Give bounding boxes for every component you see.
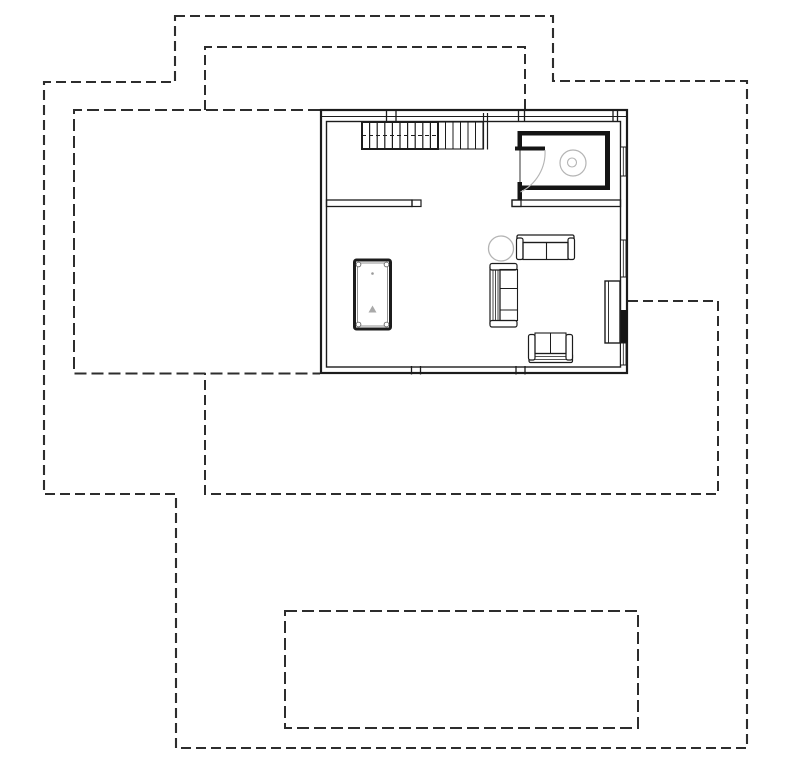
side-table	[489, 236, 514, 261]
roof-overhang-lower	[205, 301, 718, 494]
billiard-pocket	[384, 262, 389, 267]
sofa-top-back	[517, 235, 574, 243]
billiard-rack-mark	[369, 306, 377, 313]
interior-wall-right-endcap	[512, 200, 521, 207]
bathroom-wall-left-upper	[518, 131, 523, 149]
bathroom-wall-right	[605, 131, 610, 190]
toilet-bowl	[560, 150, 586, 176]
terrace-door-panel	[605, 281, 620, 343]
billiard-spot	[371, 272, 374, 275]
terrace-left-outline	[74, 110, 320, 374]
sofa-top-arm-left	[517, 238, 524, 260]
interior-wall-left	[327, 200, 413, 207]
sofa-left-arm-bottom	[490, 321, 517, 328]
bathroom-wall-top	[518, 131, 611, 136]
sofa-bottom-arm-right	[566, 335, 573, 361]
sofa-top-arm-right	[568, 238, 575, 260]
sofa-left-seat	[500, 270, 518, 321]
bathroom-door-leaf	[515, 147, 545, 151]
sofa-bottom-arm-left	[529, 335, 536, 361]
toilet-drain	[568, 158, 577, 167]
sofa-top-seat	[523, 243, 568, 260]
interior-wall-left-endcap	[412, 200, 421, 207]
billiard-table	[355, 260, 391, 329]
wall-solid-segment	[621, 310, 628, 343]
roof-overhang-upper	[205, 47, 525, 110]
floor-plan-viewport	[0, 0, 800, 763]
bathroom-wall-bottom	[520, 186, 610, 191]
floor-plan-svg	[0, 0, 800, 763]
sofa-left-back	[490, 266, 500, 326]
bathroom-wall-left-lower	[518, 182, 523, 200]
terrace-lower-outline	[285, 611, 638, 728]
billiard-pocket	[356, 322, 361, 327]
site-boundary-outer	[44, 16, 747, 748]
billiard-pocket	[384, 322, 389, 327]
interior-wall-right	[512, 200, 621, 207]
billiard-pocket	[356, 262, 361, 267]
